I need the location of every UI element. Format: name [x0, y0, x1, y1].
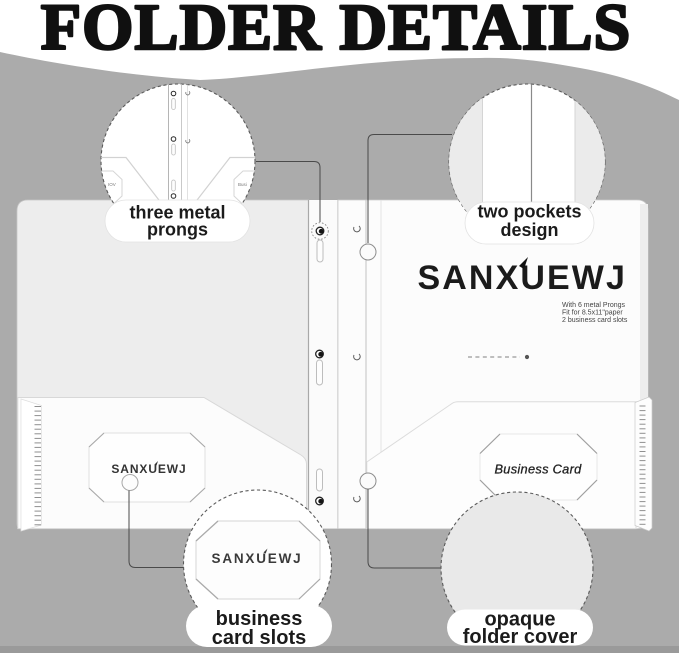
svg-text:two pockets: two pockets: [477, 202, 581, 222]
svg-text:2 business card slots: 2 business card slots: [562, 317, 628, 324]
svg-text:prongs: prongs: [147, 220, 208, 240]
svg-text:Busi: Busi: [238, 182, 247, 187]
svg-text:Fit for 8.5x11"paper: Fit for 8.5x11"paper: [562, 310, 623, 317]
svg-text:With 6 metal Prongs: With 6 metal Prongs: [562, 302, 626, 309]
svg-text:SANXUEWJ: SANXUEWJ: [212, 551, 303, 566]
svg-text:FOLDER DETAILS: FOLDER DETAILS: [41, 0, 631, 64]
svg-text:card slots: card slots: [212, 627, 306, 649]
svg-text:SANXUEWJ: SANXUEWJ: [111, 462, 186, 476]
svg-text:Business Card: Business Card: [494, 462, 582, 477]
svg-text:IOV: IOV: [108, 182, 116, 187]
svg-text:folder cover: folder cover: [463, 626, 578, 648]
svg-text:design: design: [500, 220, 558, 240]
